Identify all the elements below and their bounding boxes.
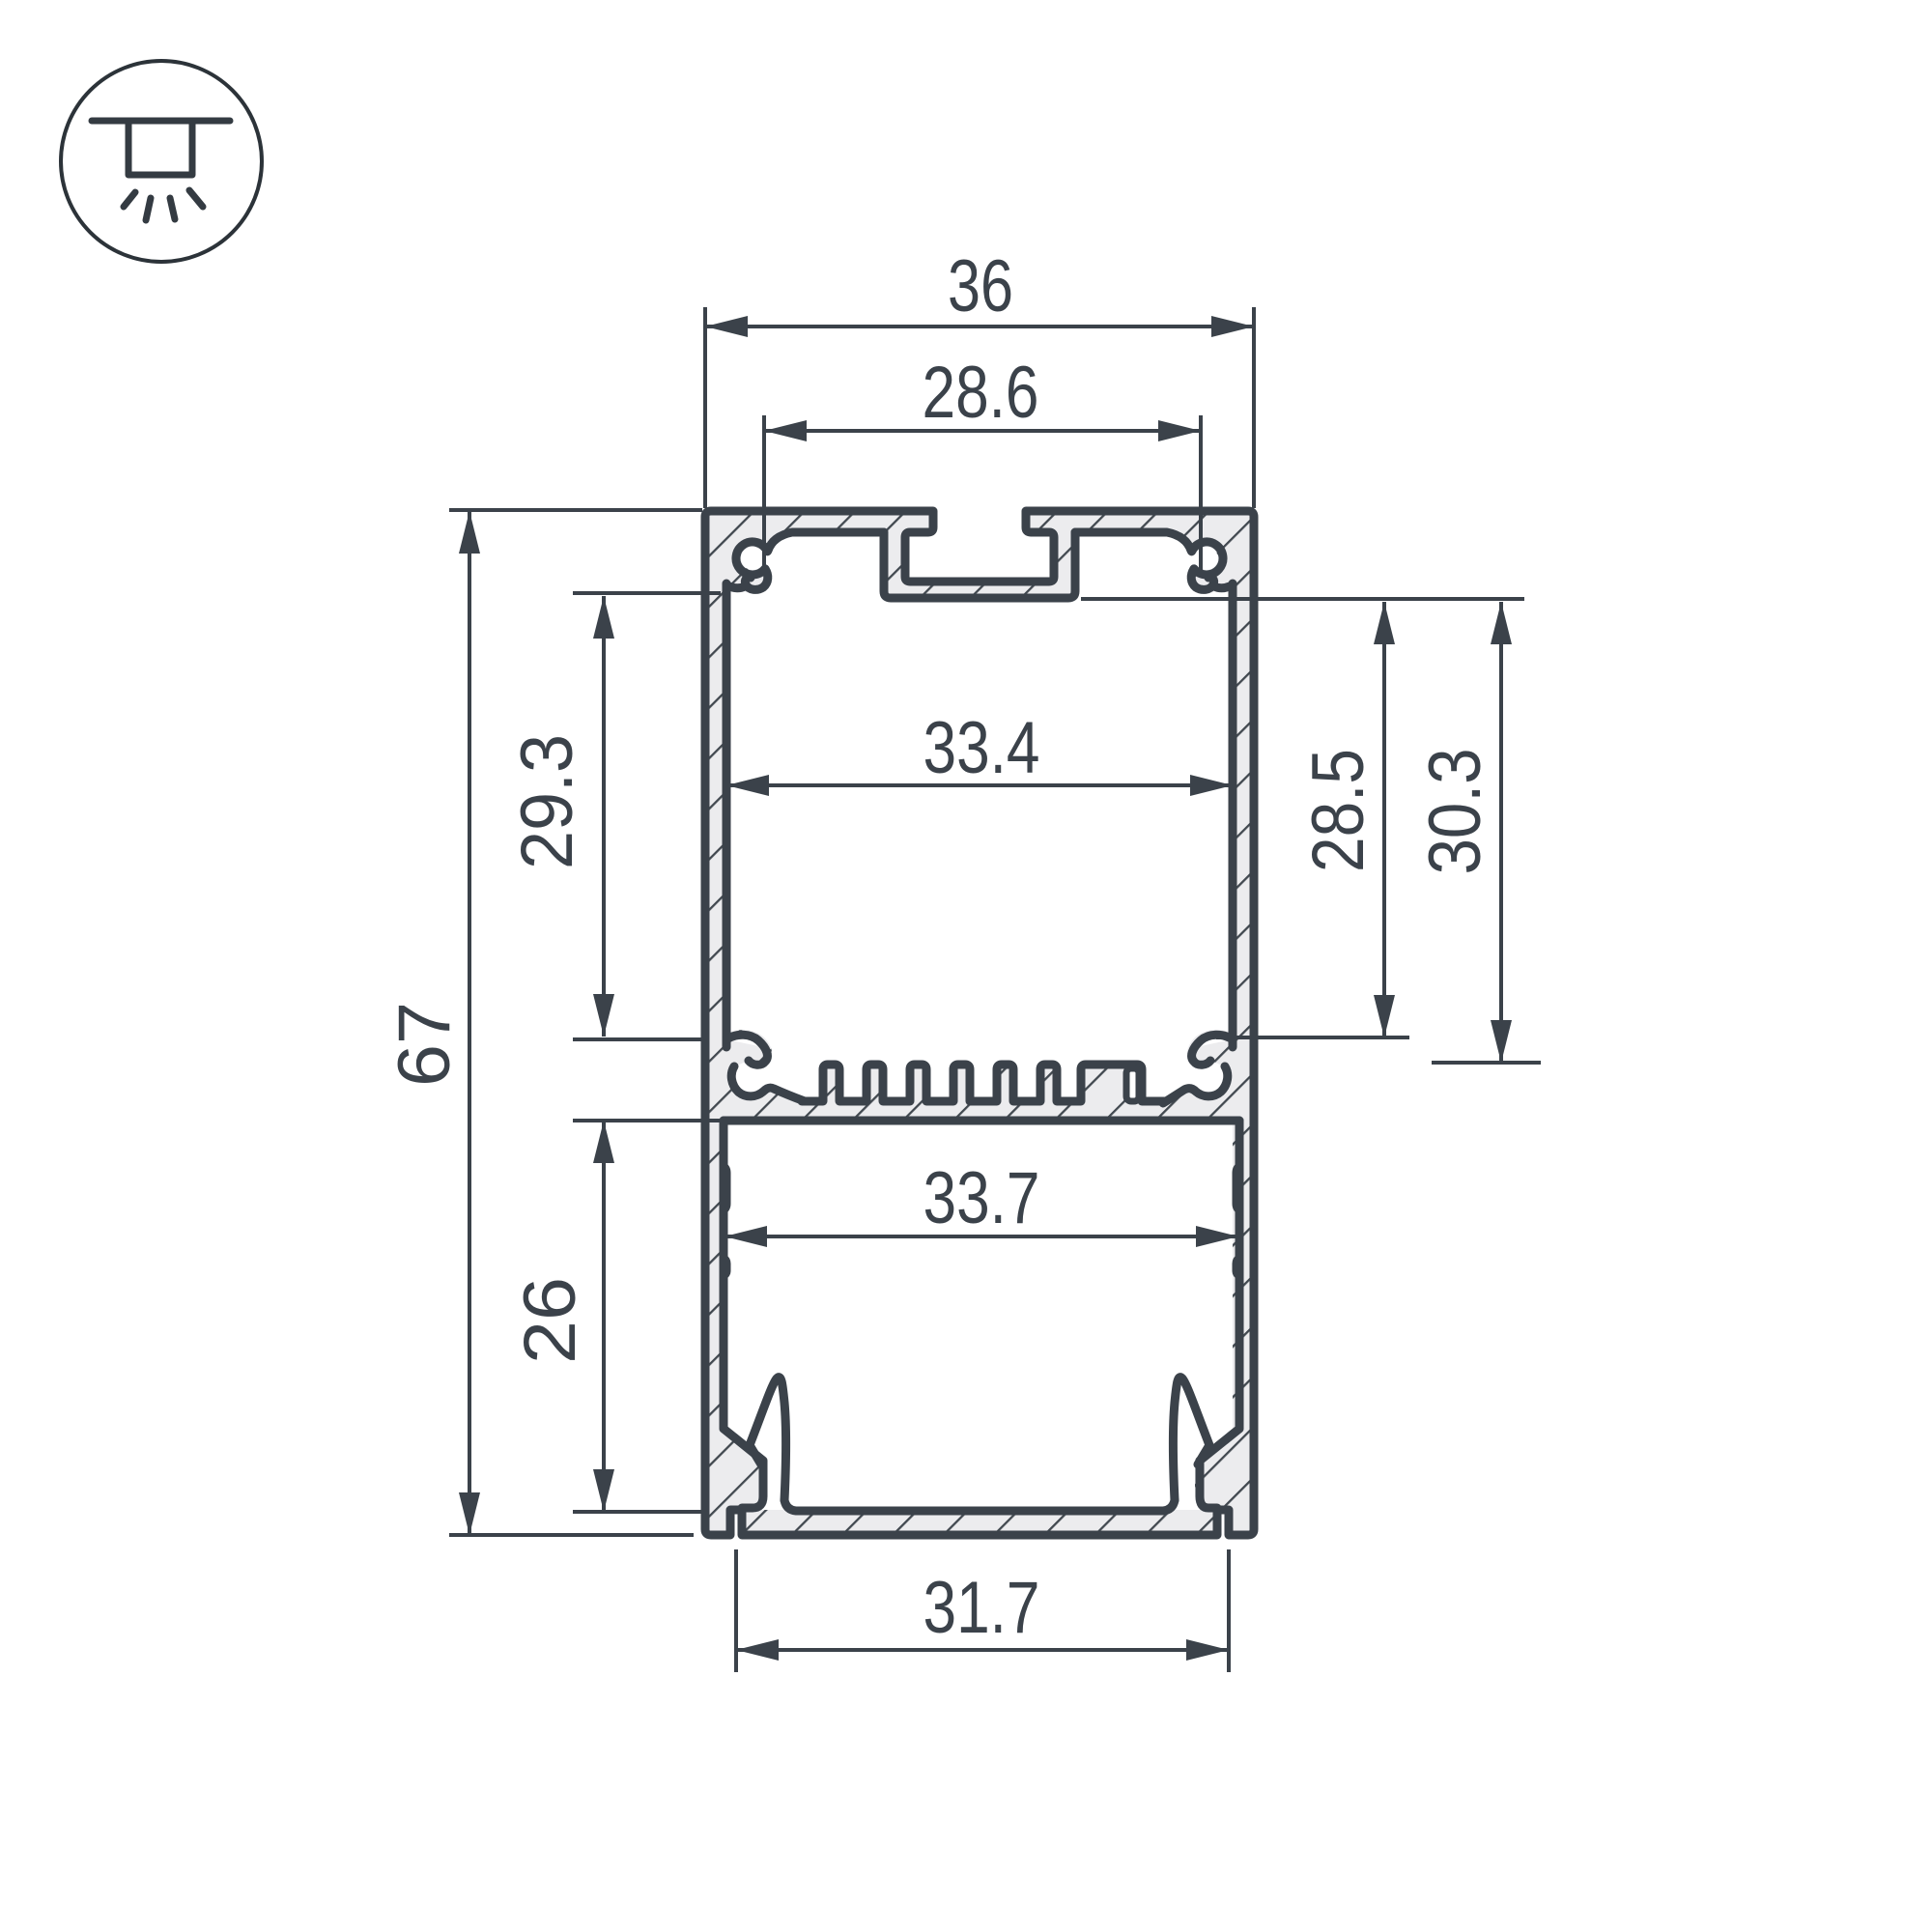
svg-text:31.7: 31.7 [923, 1567, 1040, 1649]
svg-text:28.5: 28.5 [1297, 749, 1379, 872]
svg-text:30.3: 30.3 [1414, 749, 1496, 875]
svg-text:26: 26 [509, 1277, 591, 1364]
svg-text:33.7: 33.7 [923, 1157, 1040, 1239]
svg-text:36: 36 [948, 245, 1013, 327]
svg-text:29.3: 29.3 [506, 734, 588, 869]
svg-text:28.6: 28.6 [923, 352, 1039, 434]
svg-text:33.4: 33.4 [923, 707, 1040, 789]
svg-text:67: 67 [384, 1002, 466, 1087]
